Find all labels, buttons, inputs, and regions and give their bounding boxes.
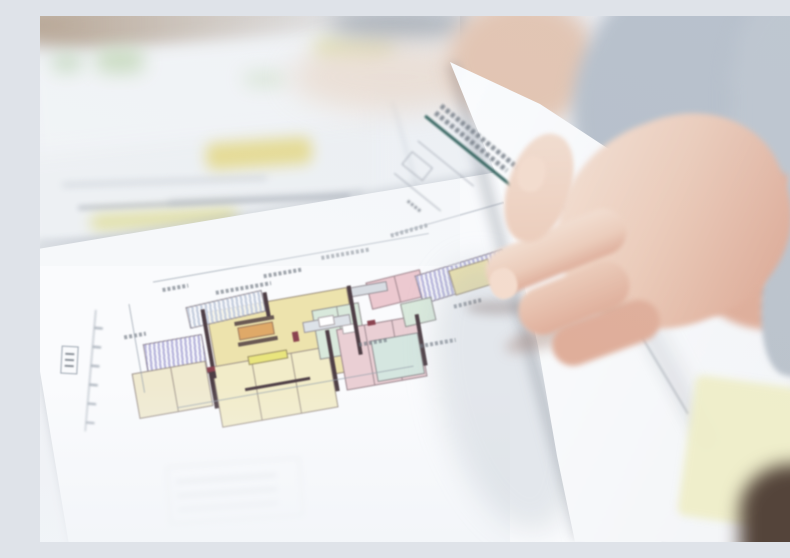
room-divider	[394, 276, 401, 301]
illegible-plan-label	[162, 284, 188, 292]
photo-blueprint-review	[40, 16, 790, 542]
illegible-plan-label	[263, 267, 303, 277]
depth-of-field-haze	[40, 384, 510, 542]
stamp-box	[60, 346, 78, 375]
